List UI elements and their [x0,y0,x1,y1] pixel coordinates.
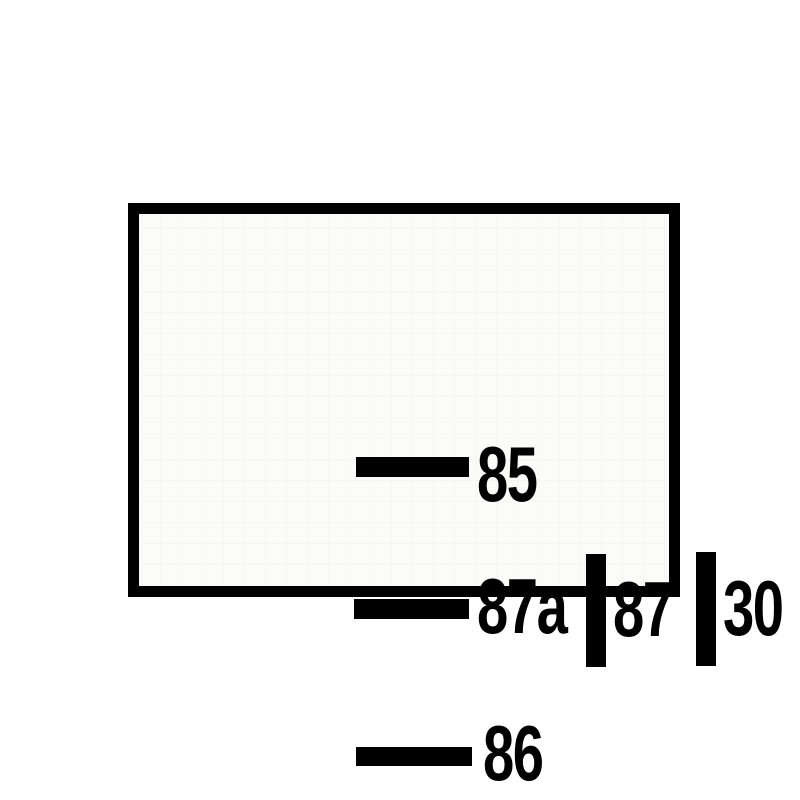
pin-85-label: 85 [477,435,537,513]
pin-87-connector-bar [586,554,606,667]
pin-87-label: 87 [613,570,673,648]
diagram-canvas: 85 87a 87 30 86 [0,0,800,800]
relay-outline-panel: 85 87a 87 30 86 [128,203,680,597]
pin-30-connector-bar [696,552,716,666]
pin-30-label: 30 [723,569,783,647]
pin-85-connector-bar [356,457,469,477]
pin-86-connector-bar [356,747,472,766]
pin-87a-label: 87a [477,567,566,645]
pin-86-label: 86 [483,714,543,792]
pin-87a-connector-bar [354,599,469,619]
